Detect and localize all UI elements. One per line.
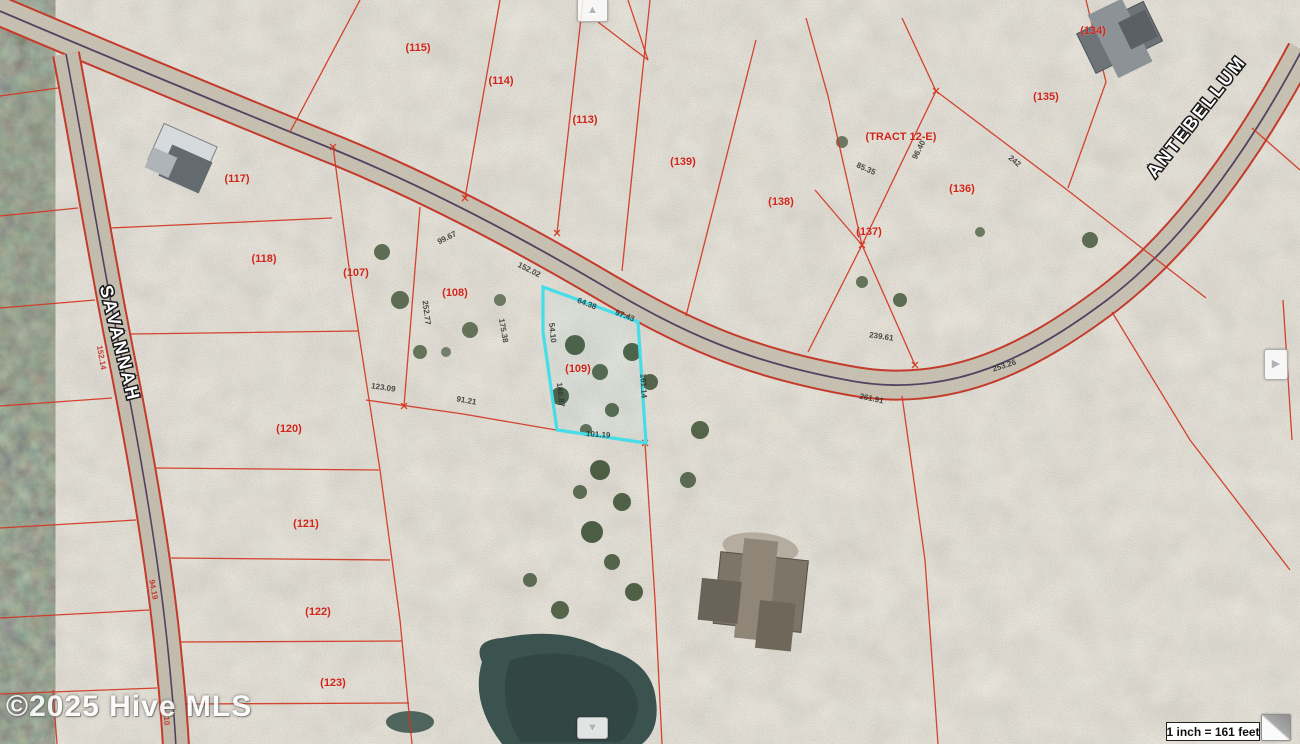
dim-label: 161.14 [638, 373, 648, 398]
parcel-label: (135) [1033, 91, 1059, 103]
parcel-label: (134) [1080, 25, 1106, 37]
parcel-label: (136) [949, 183, 975, 195]
parcel-label: (109) [565, 363, 591, 375]
pan-down-button[interactable]: ▼ [577, 717, 608, 739]
parcel-label: (122) [305, 606, 331, 618]
parcel-label: (115) [405, 42, 430, 54]
arrow-down-icon: ▼ [587, 723, 598, 734]
parcel-label: (113) [572, 114, 597, 126]
scale-label: 1 inch = 161 feet [1166, 725, 1259, 739]
arrow-right-icon: ▶ [1272, 359, 1280, 370]
scale-indicator: 1 inch = 161 feet [1166, 722, 1260, 741]
parcel-label: (139) [670, 156, 696, 168]
parcel-label: (114) [488, 75, 513, 87]
dim-label: 101.19 [586, 429, 612, 440]
parcel-label: (137) [856, 226, 882, 238]
parcel-label: (138) [768, 196, 794, 208]
parcel-label: (117) [224, 173, 249, 185]
map-viewport: 252.77175.38123.0991.2199.67152.0254.101… [0, 0, 1300, 744]
scale-handle-icon[interactable] [1261, 714, 1291, 741]
pan-right-button[interactable]: ▶ [1264, 349, 1288, 380]
terrain-grain [0, 0, 1300, 744]
parcel-label: (118) [251, 253, 276, 265]
parcel-label: (123) [320, 677, 346, 689]
pan-up-button[interactable]: ▲ [577, 0, 608, 22]
parcel-label: (120) [276, 423, 302, 435]
parcel-label: (107) [343, 267, 369, 279]
parcel-label: (121) [293, 518, 319, 530]
arrow-up-icon: ▲ [587, 5, 598, 16]
parcel-label: (TRACT 12-E) [866, 131, 937, 143]
dim-label: 110 [161, 712, 171, 726]
map-canvas[interactable]: 252.77175.38123.0991.2199.67152.0254.101… [0, 0, 1300, 744]
parcel-label: (108) [442, 287, 468, 299]
